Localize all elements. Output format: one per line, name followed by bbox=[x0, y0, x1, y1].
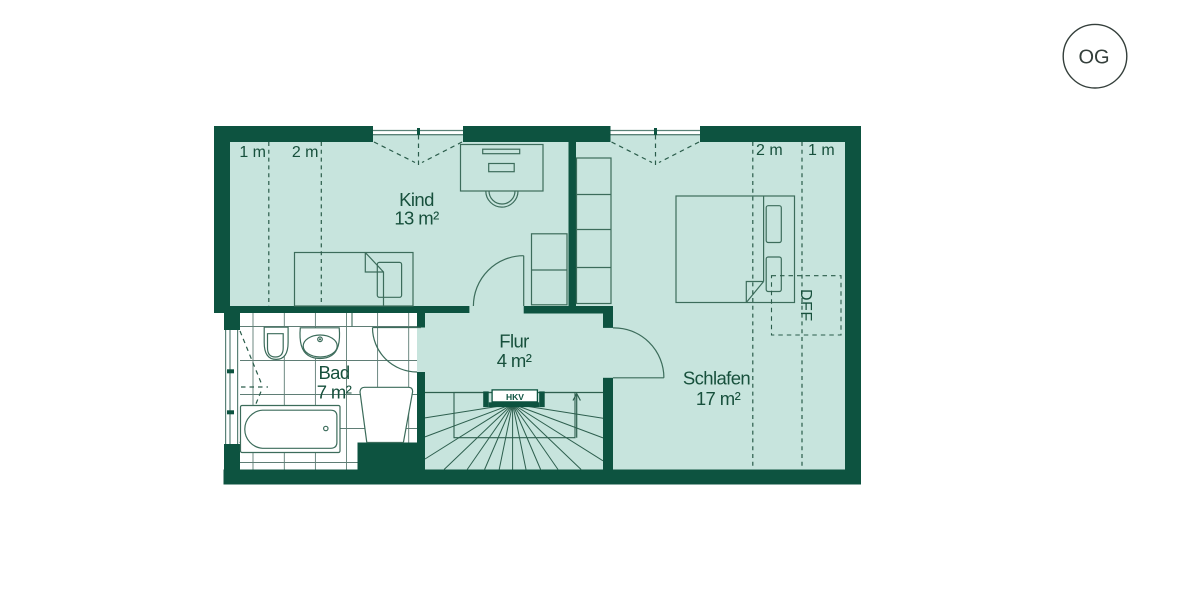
svg-text:1 m: 1 m bbox=[808, 142, 835, 159]
svg-text:2 m: 2 m bbox=[756, 142, 783, 159]
svg-text:DFF: DFF bbox=[797, 289, 814, 322]
svg-text:HKV: HKV bbox=[506, 392, 524, 402]
svg-text:Schlafen: Schlafen bbox=[683, 367, 751, 388]
svg-text:7 m²: 7 m² bbox=[317, 382, 352, 403]
svg-text:Bad: Bad bbox=[318, 362, 349, 383]
svg-text:OG: OG bbox=[1078, 47, 1109, 69]
svg-text:17 m²: 17 m² bbox=[696, 388, 741, 409]
svg-text:4 m²: 4 m² bbox=[497, 350, 532, 371]
svg-text:2 m: 2 m bbox=[292, 144, 319, 161]
svg-text:1 m: 1 m bbox=[239, 144, 266, 161]
svg-text:Flur: Flur bbox=[499, 331, 529, 352]
svg-text:13 m²: 13 m² bbox=[394, 207, 439, 228]
